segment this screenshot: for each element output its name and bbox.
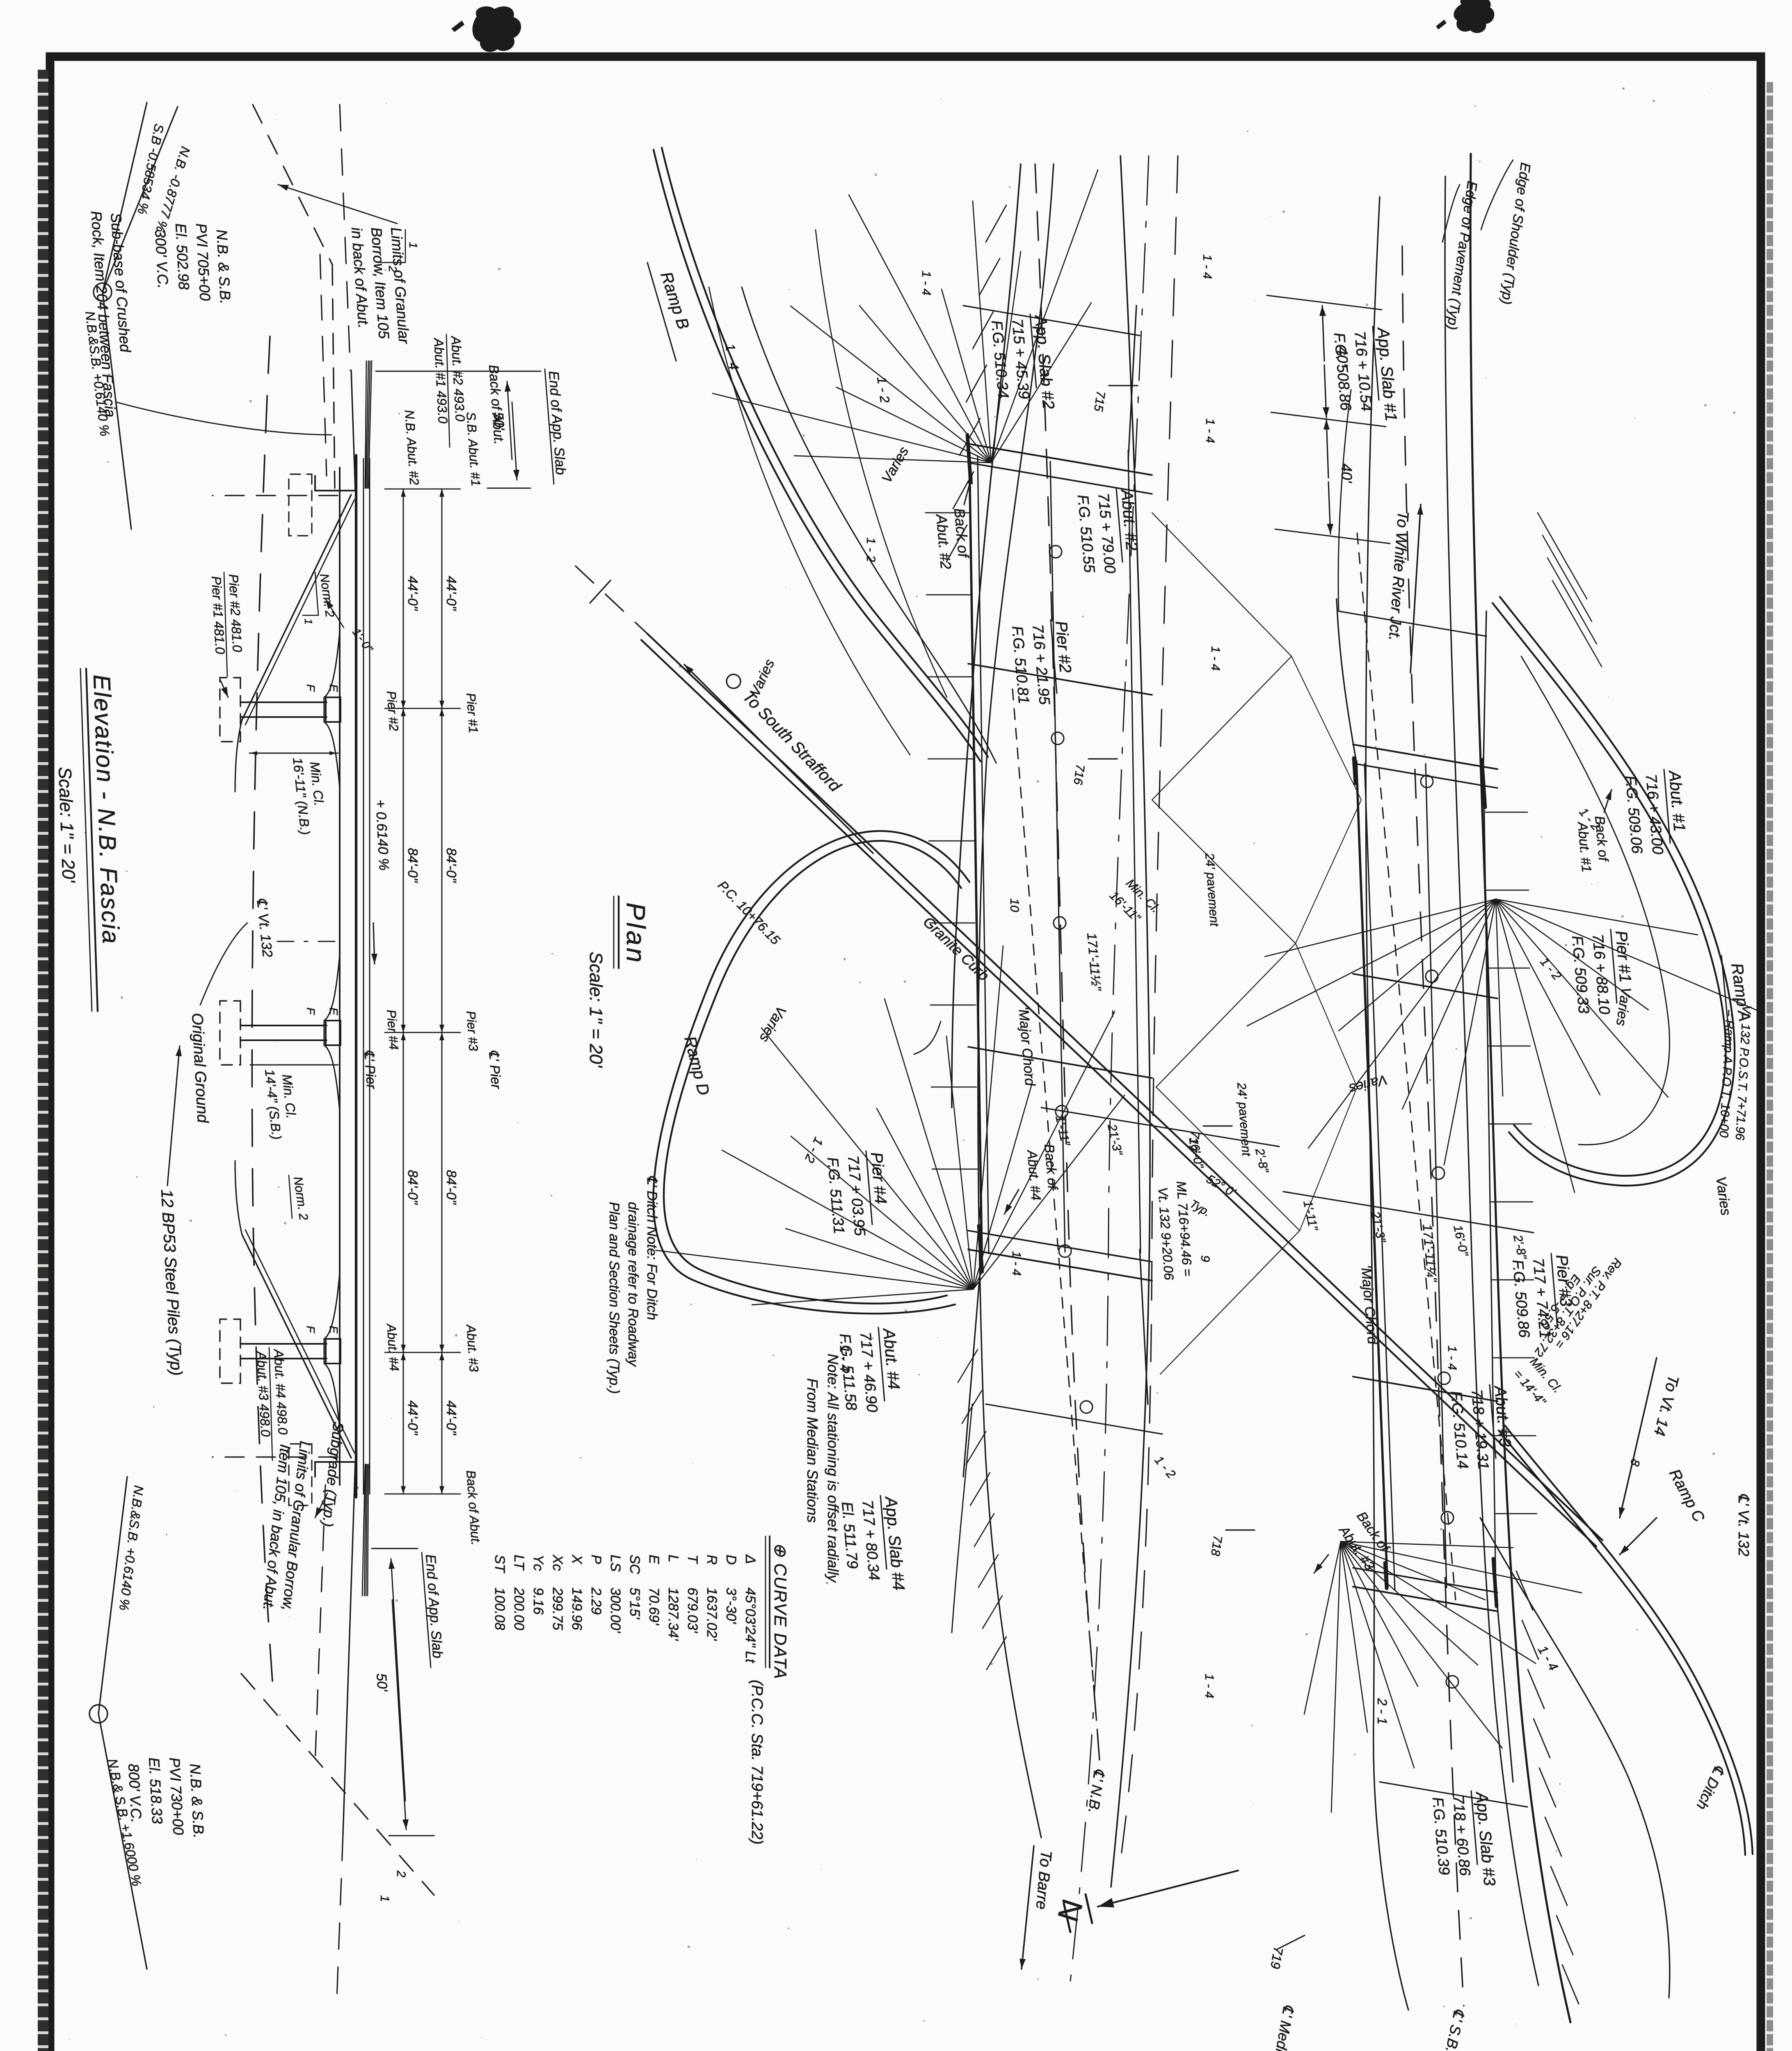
svg-text:E: E [327,1007,340,1015]
svg-text:2 - 1: 2 - 1 [1375,1698,1390,1724]
svg-text:T: T [685,1555,700,1564]
svg-text:300.00': 300.00' [608,1587,623,1633]
svg-text:℄' Ditch Note: For Ditch: ℄' Ditch Note: For Ditch [644,1175,660,1320]
svg-text:1: 1 [302,619,315,624]
svg-text:44'-0": 44'-0" [444,576,459,611]
svg-text:1 - 4: 1 - 4 [1209,646,1222,671]
svg-text:Δ: Δ [743,1554,758,1564]
svg-text:Pier #4: Pier #4 [384,1009,401,1050]
svg-text:1: 1 [378,1895,391,1902]
svg-text:718: 718 [1208,1535,1225,1557]
svg-text:45°03'24" Lt: 45°03'24" Lt [743,1587,758,1663]
svg-text:299.75: 299.75 [550,1587,565,1630]
svg-text:P: P [588,1555,604,1564]
svg-text:F: F [304,684,317,692]
svg-text:⊕ CURVE DATA: ⊕ CURVE DATA [771,1542,790,1680]
svg-text:℄' Pier: ℄' Pier [486,1049,504,1090]
svg-text:LT: LT [511,1555,527,1571]
svg-text:1 - 4: 1 - 4 [1010,1251,1023,1276]
svg-text:ST: ST [492,1555,507,1574]
svg-text:1: 1 [407,242,420,249]
svg-text:E: E [646,1555,662,1564]
svg-text:Xc: Xc [550,1554,565,1571]
svg-text:44'-0": 44'-0" [405,1400,421,1435]
svg-text:70.69': 70.69' [646,1587,662,1626]
svg-text:149.96: 149.96 [569,1587,585,1630]
svg-text:El. 502.98: El. 502.98 [172,223,192,290]
svg-text:715: 715 [1091,390,1108,412]
svg-text:D: D [723,1555,739,1565]
svg-text:(P.C.C. Sta. 719+61.22): (P.C.C. Sta. 719+61.22) [748,1680,766,1845]
svg-text:2: 2 [394,1870,408,1877]
svg-text:drainage refer to Roadway: drainage refer to Roadway [625,1202,641,1367]
svg-text:1 - 4: 1 - 4 [1200,254,1214,279]
svg-text:1 - 4: 1 - 4 [919,271,933,295]
svg-text:1 - 4: 1 - 4 [1203,418,1217,443]
svg-text:1 - 4: 1 - 4 [1202,1674,1216,1698]
svg-text:El. 518.33: El. 518.33 [146,1757,166,1824]
svg-text:E: E [327,684,340,692]
svg-text:100.08: 100.08 [492,1587,507,1630]
svg-text:SC: SC [627,1555,642,1574]
svg-text:716: 716 [1071,763,1087,786]
svg-text:1 - 4: 1 - 4 [1445,1345,1459,1370]
svg-text:Pier #2: Pier #2 [384,690,401,731]
svg-text:1637.02': 1637.02' [704,1587,720,1641]
svg-text:50': 50' [373,1673,390,1692]
svg-text:9: 9 [1198,1255,1212,1262]
svg-text:1287.34': 1287.34' [665,1587,681,1641]
svg-text:Plan: Plan [621,902,651,965]
svg-text:Note: All stationing is offse: Note: All stationing is offset radially [825,1354,841,1583]
svg-text:84'-0": 84'-0" [444,1170,459,1205]
svg-text:3°-30': 3°-30' [723,1587,739,1624]
svg-text:84'-0": 84'-0" [405,848,421,883]
svg-text:℄' Vt. 132: ℄' Vt. 132 [1735,1493,1752,1556]
svg-text:300' V.C.: 300' V.C. [152,229,171,289]
svg-text:Scale: 1" = 20': Scale: 1" = 20' [586,952,606,1068]
svg-text:E: E [327,1326,340,1334]
svg-text:LS: LS [608,1555,623,1572]
svg-text:From Median Stations: From Median Stations [804,1378,821,1523]
svg-text:5°15': 5°15' [627,1587,642,1619]
svg-text:10: 10 [1008,898,1021,912]
svg-text:1 - 2: 1 - 2 [864,537,878,562]
svg-text:800' V.C.: 800' V.C. [125,1763,145,1823]
svg-text:F: F [304,1007,317,1015]
svg-text:200.00: 200.00 [511,1587,527,1630]
svg-text:84'-0": 84'-0" [444,848,459,883]
svg-text:679.03': 679.03' [685,1587,700,1633]
svg-text:X: X [569,1554,585,1565]
svg-text:℄' Pier: ℄' Pier [361,1049,379,1090]
svg-text:F: F [304,1326,317,1334]
svg-text:L: L [665,1555,681,1562]
svg-text:2.29: 2.29 [588,1587,604,1615]
svg-text:R: R [704,1555,720,1565]
svg-text:84'-0": 84'-0" [405,1170,421,1205]
svg-text:44'-0": 44'-0" [444,1400,459,1435]
svg-text:2: 2 [386,265,399,272]
svg-text:Yc: Yc [530,1555,546,1571]
svg-text:Scale: 1" = 20': Scale: 1" = 20' [55,767,79,884]
svg-text:Pier #3: Pier #3 [464,1010,481,1051]
svg-text:Pier #1: Pier #1 [464,692,481,733]
svg-text:9.16: 9.16 [530,1587,546,1615]
svg-text:Plan and Section Sheets (Typ.): Plan and Section Sheets (Typ.) [606,1202,622,1394]
svg-text:44'-0": 44'-0" [405,576,421,611]
svg-text:40': 40' [1338,464,1355,483]
